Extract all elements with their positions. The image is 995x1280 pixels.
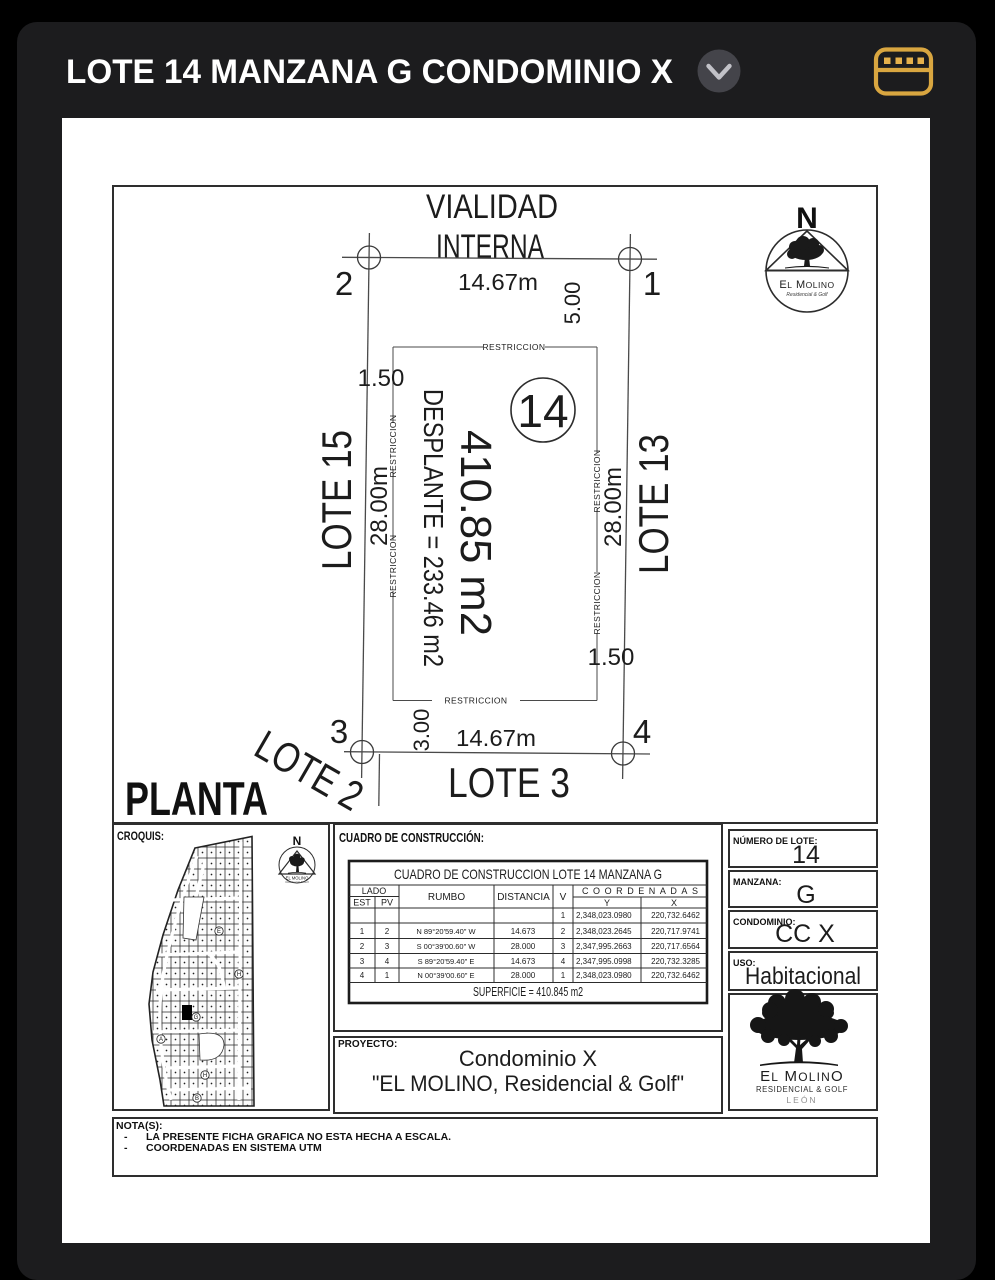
svg-text:CUADRO DE CONSTRUCCIÓN:: CUADRO DE CONSTRUCCIÓN: [339,830,484,845]
svg-text:2: 2 [335,265,353,302]
svg-text:CC X: CC X [775,920,835,948]
svg-text:S 00°39'00.60" W: S 00°39'00.60" W [417,942,477,951]
svg-text:CUADRO DE CONSTRUCCION LOTE 14: CUADRO DE CONSTRUCCION LOTE 14 MANZANA G [394,866,662,882]
svg-text:14.67m: 14.67m [458,269,538,295]
svg-text:Residencial & Golf: Residencial & Golf [285,880,308,884]
svg-text:4: 4 [561,957,566,966]
svg-text:N 00°39'00.60" E: N 00°39'00.60" E [417,971,474,980]
svg-text:E: E [217,929,221,935]
svg-text:LEÓN: LEÓN [786,1095,817,1105]
svg-text:2,347,995.2663: 2,347,995.2663 [576,942,632,951]
svg-text:EL MOLINO: EL MOLINO [779,279,834,291]
svg-text:G: G [194,1015,199,1021]
svg-text:1: 1 [360,927,365,936]
svg-text:LOTE 13: LOTE 13 [630,434,677,574]
svg-text:X: X [671,898,677,908]
svg-text:14.673: 14.673 [511,927,536,936]
svg-text:1: 1 [385,971,390,980]
svg-text:CROQUIS:: CROQUIS: [117,829,164,843]
svg-text:N 89°20'59.40" W: N 89°20'59.40" W [416,927,476,936]
svg-text:DISTANCIA: DISTANCIA [497,892,550,903]
svg-text:28.000: 28.000 [511,942,536,951]
svg-text:A: A [159,1037,163,1043]
svg-text:2,347,995.0998: 2,347,995.0998 [576,957,632,966]
svg-text:S 89°20'59.40" E: S 89°20'59.40" E [418,957,475,966]
svg-text:LOTE 15: LOTE 15 [313,430,360,570]
svg-text:Y: Y [604,898,610,908]
svg-text:-: - [124,1142,128,1154]
svg-text:3: 3 [360,957,365,966]
svg-text:COORDENADAS EN SISTEMA UTM: COORDENADAS EN SISTEMA UTM [146,1142,322,1154]
svg-text:220,732.6462: 220,732.6462 [651,911,700,920]
svg-text:RUMBO: RUMBO [428,892,465,903]
svg-text:Habitacional: Habitacional [745,963,861,990]
svg-text:PV: PV [381,898,393,908]
svg-text:4: 4 [633,713,651,750]
svg-text:2: 2 [561,927,566,936]
svg-text:220,717.6564: 220,717.6564 [651,942,700,951]
svg-text:RESIDENCIAL & GOLF: RESIDENCIAL & GOLF [756,1085,848,1094]
svg-text:14: 14 [792,841,820,869]
svg-text:LOTE 14 MANZANA G CONDOMINIO X: LOTE 14 MANZANA G CONDOMINIO X [66,53,673,91]
svg-text:220,717.9741: 220,717.9741 [651,927,700,936]
svg-text:Residencial & Golf: Residencial & Golf [786,292,828,298]
svg-text:EL MOLINO: EL MOLINO [760,1068,844,1085]
svg-text:5.00: 5.00 [560,282,585,325]
svg-text:2,348,023.0980: 2,348,023.0980 [576,971,632,980]
svg-text:RESTRICCION: RESTRICCION [483,342,546,352]
svg-text:INTERNA: INTERNA [436,228,544,266]
svg-text:G: G [796,881,815,909]
svg-text:COORDENADAS: COORDENADAS [582,886,698,896]
svg-text:410.85 m2: 410.85 m2 [451,430,500,636]
svg-text:3: 3 [385,942,390,951]
svg-text:LADO: LADO [362,886,387,896]
svg-text:4: 4 [385,957,390,966]
svg-text:14: 14 [517,385,568,437]
svg-text:"EL MOLINO, Residencial & Golf: "EL MOLINO, Residencial & Golf" [372,1071,684,1096]
svg-text:1: 1 [561,971,566,980]
svg-text:N: N [293,834,302,848]
svg-text:RESTRICCION: RESTRICCION [592,572,602,635]
svg-text:28.000: 28.000 [511,971,536,980]
svg-text:1.50: 1.50 [588,644,635,671]
svg-text:220,732.6462: 220,732.6462 [651,971,700,980]
svg-text:14.67m: 14.67m [456,725,536,751]
svg-text:14.673: 14.673 [511,957,536,966]
svg-text:220,732.3285: 220,732.3285 [651,957,700,966]
svg-text:4: 4 [360,971,365,980]
svg-text:3: 3 [561,942,566,951]
svg-text:1: 1 [643,265,661,302]
svg-text:PROYECTO:: PROYECTO: [338,1039,397,1050]
svg-text:PLANTA: PLANTA [125,772,268,825]
svg-text:H: H [203,1073,207,1079]
svg-text:Condominio X: Condominio X [459,1046,598,1071]
svg-text:3: 3 [330,713,348,750]
svg-text:3.00: 3.00 [409,709,434,752]
svg-text:28.00m: 28.00m [366,466,393,546]
svg-text:V: V [560,892,567,903]
svg-text:1: 1 [561,911,566,920]
svg-text:LOTE 3: LOTE 3 [448,759,570,806]
svg-text:2: 2 [360,942,365,951]
svg-text:2,348,023.2645: 2,348,023.2645 [576,927,632,936]
svg-text:B: B [195,1096,199,1102]
svg-text:VIALIDAD: VIALIDAD [426,188,558,226]
svg-text:RESTRICCION: RESTRICCION [445,696,508,706]
svg-text:H: H [237,972,241,978]
svg-text:28.00m: 28.00m [600,467,627,547]
svg-text:2,348,023.0980: 2,348,023.0980 [576,911,632,920]
svg-text:DESPLANTE = 233.46 m2: DESPLANTE = 233.46 m2 [418,389,449,667]
svg-text:MANZANA:: MANZANA: [733,877,782,887]
svg-text:EST: EST [353,898,371,908]
svg-text:2: 2 [385,927,390,936]
svg-text:1.50: 1.50 [358,365,405,392]
svg-text:SUPERFICIE = 410.845 m2: SUPERFICIE = 410.845 m2 [473,985,583,999]
